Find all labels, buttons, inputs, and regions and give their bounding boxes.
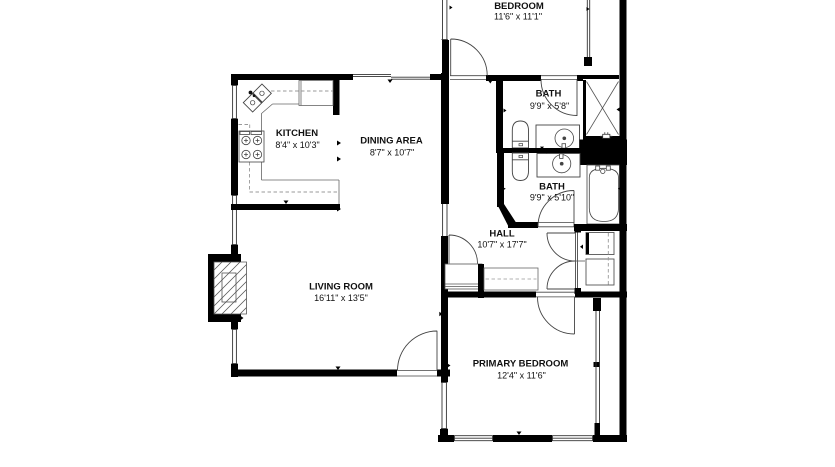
svg-text:HALL: HALL — [489, 229, 515, 240]
svg-text:8'7" x 10'7": 8'7" x 10'7" — [370, 148, 414, 158]
svg-text:12'4" x 11'6": 12'4" x 11'6" — [497, 371, 546, 381]
svg-text:8'4" x 10'3": 8'4" x 10'3" — [275, 140, 319, 150]
svg-text:BATH: BATH — [536, 89, 562, 100]
svg-text:BATH: BATH — [539, 182, 565, 193]
svg-text:DINING AREA: DINING AREA — [360, 136, 423, 147]
svg-text:KITCHEN: KITCHEN — [276, 128, 318, 139]
svg-text:PRIMARY BEDROOM: PRIMARY BEDROOM — [473, 359, 569, 370]
svg-text:10'7" x 17'7": 10'7" x 17'7" — [477, 240, 526, 250]
svg-text:BEDROOM: BEDROOM — [494, 1, 544, 12]
svg-text:LIVING ROOM: LIVING ROOM — [309, 282, 373, 293]
svg-text:11'6" x 11'1": 11'6" x 11'1" — [494, 12, 542, 22]
svg-text:16'11" x 13'5": 16'11" x 13'5" — [314, 293, 368, 303]
